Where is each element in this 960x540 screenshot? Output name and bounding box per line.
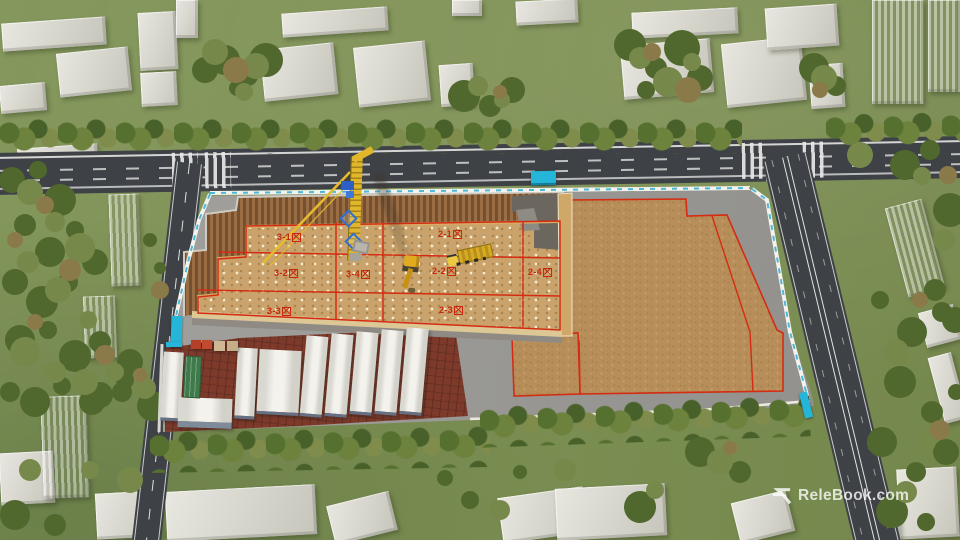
qu-district-glyph [361, 270, 370, 279]
city-building [165, 484, 317, 540]
excavator [397, 251, 431, 296]
site-office-building [256, 349, 301, 416]
city-building [631, 7, 738, 39]
zone-label-2-1: 2-1 [438, 229, 462, 239]
qu-district-glyph [289, 269, 298, 278]
tree-cluster [223, 57, 249, 83]
excavator-body [404, 255, 420, 268]
red-container [191, 340, 201, 349]
tan-container [227, 341, 238, 351]
city-building [439, 63, 476, 107]
zone-number: 2-3 [439, 305, 453, 315]
tree-belt [150, 425, 491, 473]
city-tower [83, 295, 117, 358]
relebook-logo-icon [770, 486, 792, 506]
zone-label-2-4: 2-4 [528, 267, 552, 277]
city-building [259, 42, 338, 101]
green-shade-area [183, 356, 202, 399]
zone-number: 3-4 [346, 269, 360, 279]
city-building [353, 40, 431, 107]
zone-number: 2-1 [438, 229, 452, 239]
city-tower [872, 0, 924, 104]
zone-number: 3-3 [267, 306, 281, 316]
zone-number: 2-2 [432, 266, 446, 276]
city-building [515, 0, 578, 26]
site-gate-west-beam [166, 342, 182, 347]
crane-cab [341, 181, 354, 190]
red-container [202, 340, 212, 349]
excavator-bucket [408, 287, 415, 293]
qu-district-glyph [453, 230, 462, 239]
city-building [140, 71, 178, 107]
city-building [176, 0, 198, 38]
city-building [138, 11, 179, 71]
city-tower [928, 0, 960, 92]
zone-label-3-1: 3-1 [277, 232, 301, 242]
city-tower [108, 194, 141, 287]
zone-label-3-2: 3-2 [274, 268, 298, 278]
watermark-text: ReleBook.com [798, 487, 909, 505]
city-building [809, 63, 846, 109]
crosswalk [205, 152, 232, 188]
city-building [452, 0, 482, 16]
city-building [765, 4, 840, 51]
watermark: ReleBook.com [770, 486, 909, 506]
zone-label-2-3: 2-3 [439, 305, 463, 315]
qu-district-glyph [292, 233, 301, 242]
city-building [56, 46, 132, 97]
tree-belt [826, 111, 960, 147]
site-office-building [234, 348, 258, 420]
crane-base-pad [349, 253, 362, 261]
zone-number: 2-4 [528, 267, 542, 277]
site-gate-north [531, 171, 556, 185]
qu-district-glyph [454, 306, 463, 315]
site-office-building [177, 397, 232, 429]
city-building [620, 38, 714, 100]
tree-cluster [202, 39, 228, 65]
crane-counterweight [346, 191, 354, 198]
construction-site-aerial-render: 3-1 3-2 3-3 3-4 2-1 2-2 2-3 2-4 ReleBook… [0, 0, 960, 540]
zone-number: 3-1 [277, 232, 291, 242]
crosswalk [742, 143, 768, 179]
zone-label-3-3: 3-3 [267, 306, 291, 316]
qu-district-glyph [282, 307, 291, 316]
zone-label-3-4: 3-4 [346, 269, 370, 279]
city-building [555, 483, 668, 540]
city-tower [40, 395, 90, 499]
tan-container [214, 341, 225, 351]
qu-district-glyph [543, 268, 552, 277]
city-building [0, 82, 47, 114]
zone-number: 3-2 [274, 268, 288, 278]
